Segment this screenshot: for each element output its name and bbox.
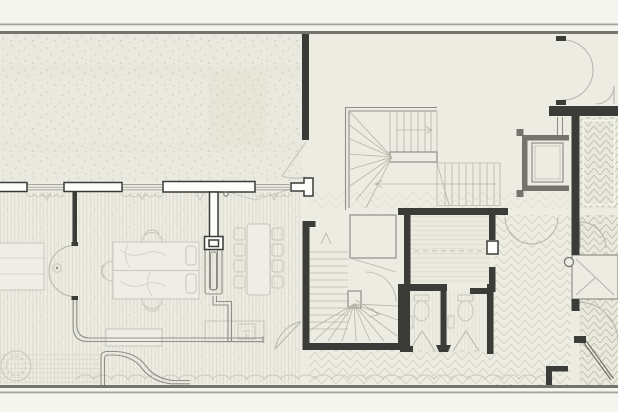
- wc-wall-left-foot: [400, 346, 413, 352]
- closet-right: [565, 255, 618, 299]
- right-wall-upper: [572, 116, 580, 215]
- closet-knob: [565, 258, 574, 267]
- wc-wall-mid: [441, 290, 447, 345]
- dining-table: [247, 224, 270, 295]
- study-wall-right-top: [489, 215, 496, 240]
- hall-strip-hatch: [309, 192, 571, 209]
- room-topright-hatch: [580, 117, 618, 208]
- top-wall-inner-line: [0, 31, 618, 34]
- study-wall-bottom: [398, 284, 447, 291]
- bedroom-door-jamb-1: [72, 242, 79, 246]
- shaft-wall-bottom: [522, 186, 569, 192]
- elevator-car: [532, 143, 563, 182]
- bedroom-door-jamb-2: [72, 296, 79, 300]
- top-door-jamb-2: [556, 100, 566, 105]
- understair-room: [350, 215, 396, 258]
- shaft-nub-bottom: [517, 190, 524, 197]
- window-sill-2: [64, 183, 122, 192]
- bottom-band-herringbone: [309, 350, 494, 384]
- top-wall-outer-line: [0, 24, 618, 26]
- shaft-wall-top: [522, 135, 569, 141]
- t-wall-bar: [163, 182, 255, 193]
- t-wall-stem: [210, 192, 219, 237]
- study-hatch: [411, 215, 490, 284]
- desk-left-room: [0, 243, 44, 290]
- study-wall-left: [404, 215, 411, 290]
- right-wall-lower: [572, 299, 580, 311]
- top-door-jamb-1: [556, 36, 566, 41]
- stool-dot: [56, 267, 58, 269]
- study-wall-top: [398, 208, 508, 215]
- stair-wall-bottom: [303, 343, 404, 350]
- stair-wall-left: [303, 221, 310, 350]
- room-right-hatch: [580, 215, 618, 385]
- floor-plan-canvas: [0, 0, 618, 412]
- entry-jamb-tick: [574, 336, 586, 343]
- hall-herringbone: [494, 215, 571, 385]
- siding-band-bottomleft: [0, 352, 101, 384]
- window-sill-1: [0, 183, 27, 192]
- right-wall-mid: [572, 215, 580, 255]
- stair-upper-slot: [390, 152, 437, 162]
- shaft-wall-left: [522, 135, 528, 191]
- wc-wall-right: [487, 284, 494, 354]
- garden-side-wall: [302, 34, 309, 140]
- study-pivot-block: [487, 241, 498, 254]
- shaft-nub-top: [517, 129, 524, 136]
- stair-wall-right: [398, 290, 405, 350]
- bottom-wall-outer-line: [0, 392, 618, 394]
- topright-wall: [549, 106, 618, 116]
- wc-wall-right-stub: [470, 288, 487, 294]
- bottom-wall-inner-line: [0, 385, 618, 388]
- bath-floor-hatch: [404, 290, 494, 354]
- bedroom-wall-stub: [73, 192, 78, 246]
- t-wall-foot-core: [209, 240, 219, 247]
- garden-planting-bed-stipple: [209, 70, 266, 146]
- wc-wall-left: [404, 290, 410, 346]
